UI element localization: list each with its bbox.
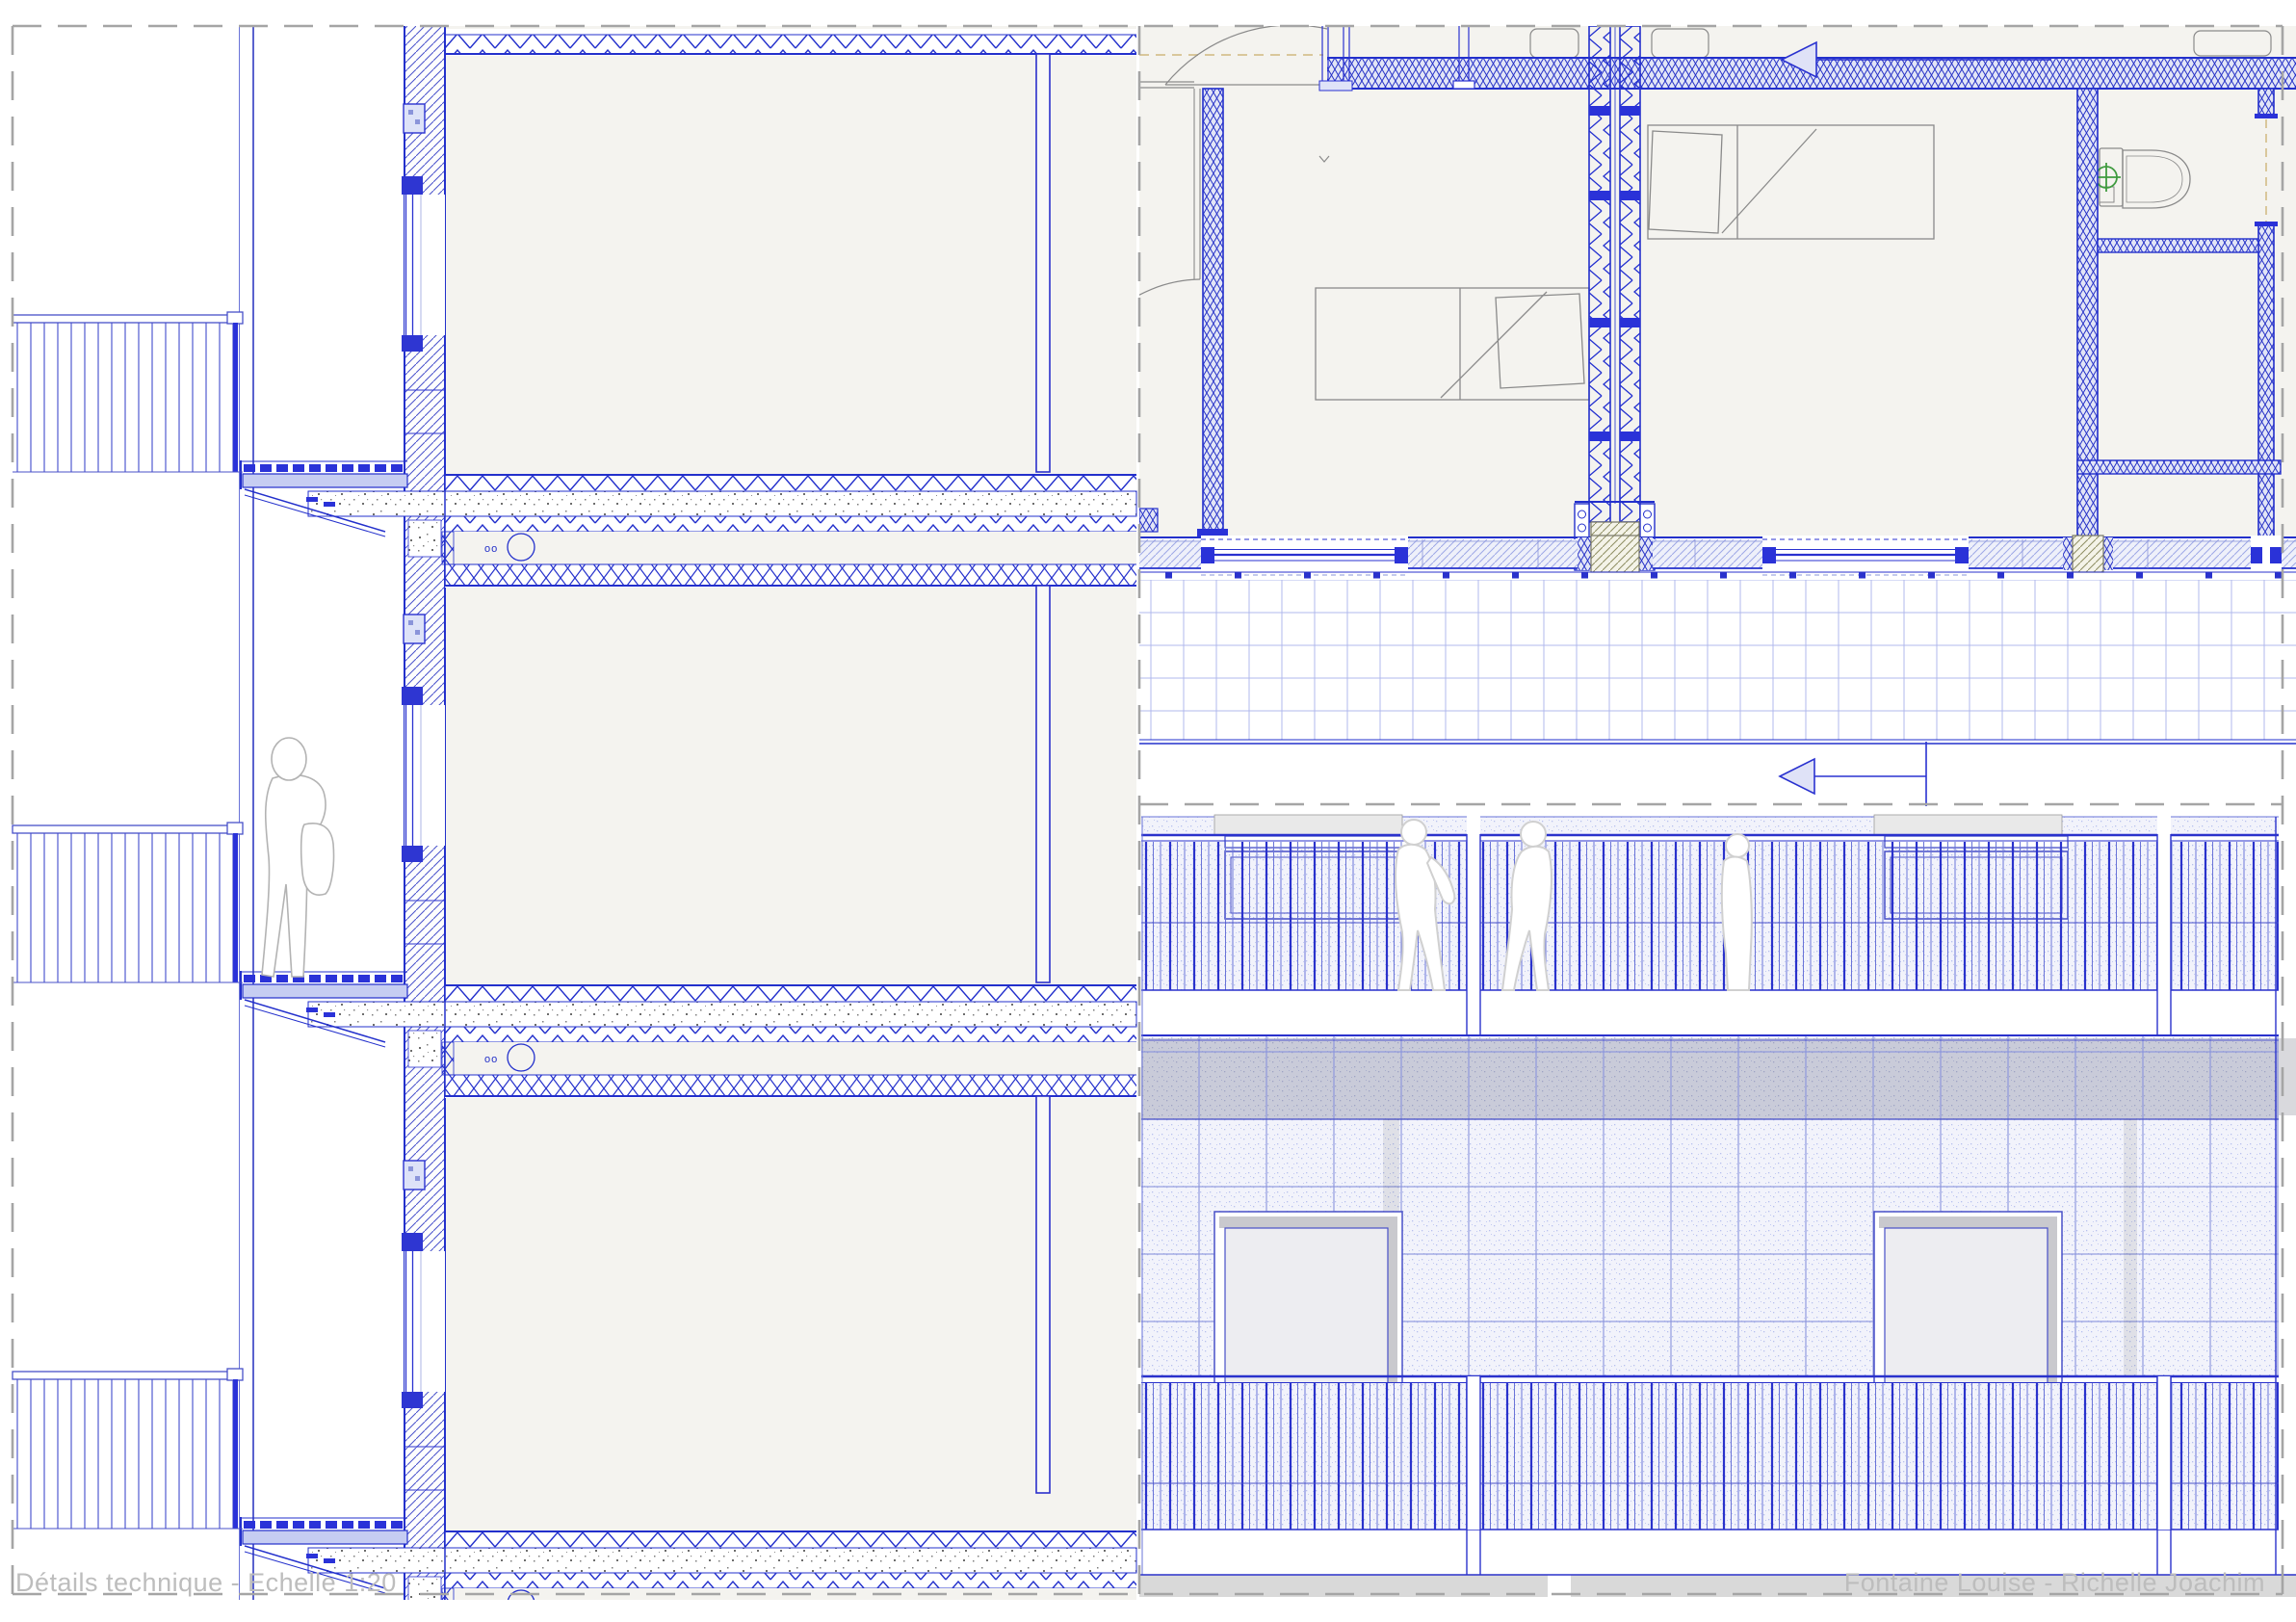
person-silhouette-section <box>262 738 334 977</box>
architectural-drawing: oo <box>0 0 2296 1622</box>
deck-clips-row <box>1139 570 2296 580</box>
authors-label: Fontaine Louise - Richelle Joachim <box>1844 1568 2265 1597</box>
interior-partition <box>1036 54 1050 472</box>
blueprint-sheet: oo <box>0 0 2296 1622</box>
scale-label: Détails technique - Echelle 1:20 <box>15 1568 397 1597</box>
upper-window-recess <box>1214 815 1402 835</box>
section-cut-arrow-walkway <box>1780 742 1926 807</box>
plan-facade-wall <box>1139 536 2296 575</box>
room-interior <box>445 26 1136 1600</box>
shoulder-bag <box>301 824 334 895</box>
lower-railing-balusters <box>1141 1383 2296 1530</box>
section-detail-panel <box>13 26 1136 1622</box>
upper-window-recess <box>1874 815 2062 835</box>
floor-plan-panel <box>1069 25 2296 807</box>
upper-railing-balusters <box>1141 842 2296 990</box>
elevation-panel <box>1139 814 2296 1597</box>
downpipe-shadow <box>2124 1119 2137 1377</box>
bathroom-wall-bottom <box>2098 239 2258 252</box>
plan-wall-horizontal <box>2077 460 2281 474</box>
elevation-window-b <box>1874 1212 2062 1395</box>
plan-window-2 <box>1762 536 1969 575</box>
plan-window-1 <box>1201 536 1408 575</box>
ceiling-insulation-band <box>445 35 1136 53</box>
plan-wall-left <box>1203 89 1223 536</box>
elevation-window-a <box>1214 1212 1402 1395</box>
arrow-left-icon <box>1780 759 1814 794</box>
tiled-wall-storey <box>1141 1035 2296 1395</box>
